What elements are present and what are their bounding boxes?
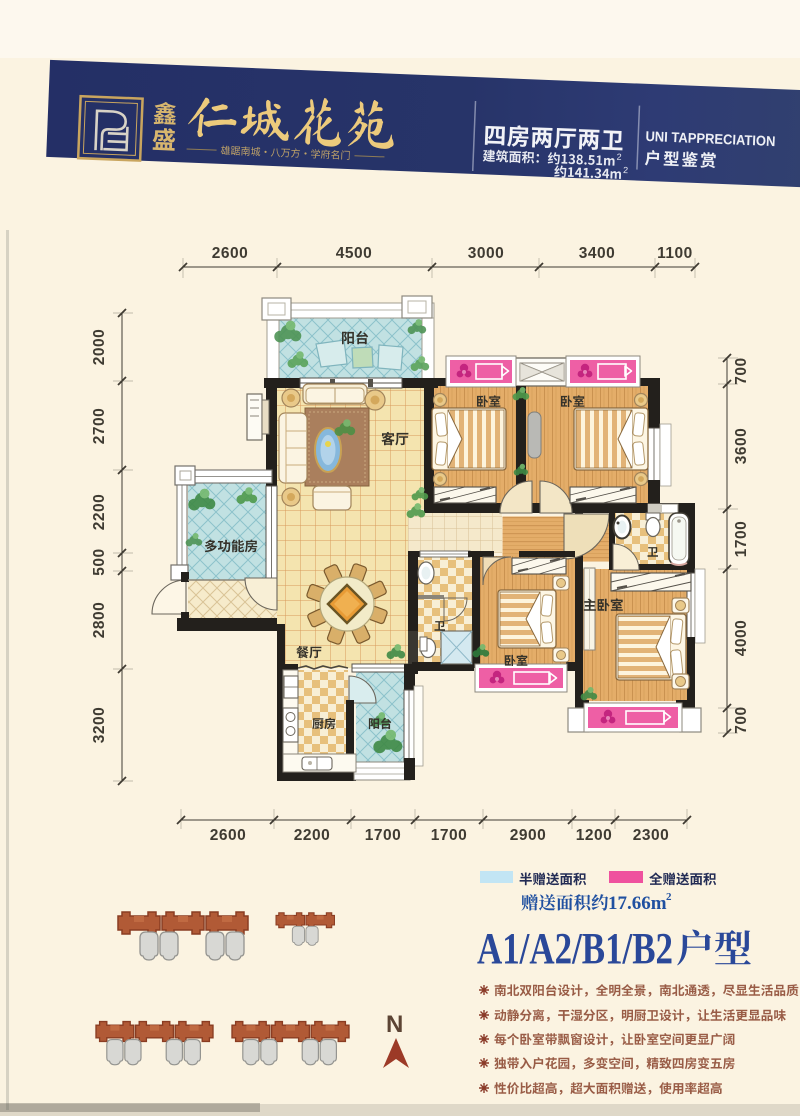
svg-text:2800: 2800 [91, 602, 108, 638]
svg-text:2900: 2900 [510, 827, 546, 844]
svg-text:700: 700 [733, 357, 750, 384]
svg-text:700: 700 [733, 706, 750, 733]
svg-text:3200: 3200 [91, 707, 108, 743]
svg-text:1100: 1100 [657, 245, 693, 262]
svg-text:3000: 3000 [468, 245, 504, 262]
svg-text:2: 2 [616, 152, 621, 162]
svg-text:N: N [386, 1011, 403, 1038]
svg-text:4500: 4500 [336, 245, 372, 262]
svg-text:1700: 1700 [733, 521, 750, 557]
svg-text:2200: 2200 [91, 494, 108, 530]
svg-text:500: 500 [91, 548, 108, 575]
svg-text:2300: 2300 [633, 827, 669, 844]
svg-text:1700: 1700 [365, 827, 401, 844]
svg-text:1700: 1700 [431, 827, 467, 844]
svg-text:2200: 2200 [294, 827, 330, 844]
svg-text:3400: 3400 [579, 245, 615, 262]
svg-text:4000: 4000 [733, 620, 750, 656]
svg-text:1200: 1200 [576, 827, 612, 844]
svg-text:3600: 3600 [733, 428, 750, 464]
svg-text:2: 2 [666, 891, 672, 903]
svg-text:2: 2 [623, 165, 628, 175]
svg-text:2000: 2000 [91, 329, 108, 365]
svg-text:A1/A2/B1/B2: A1/A2/B1/B2 [477, 924, 673, 973]
svg-text:17.66m: 17.66m [608, 893, 667, 914]
svg-text:2600: 2600 [210, 827, 246, 844]
svg-text:2700: 2700 [91, 408, 108, 444]
svg-text:2600: 2600 [212, 245, 248, 262]
